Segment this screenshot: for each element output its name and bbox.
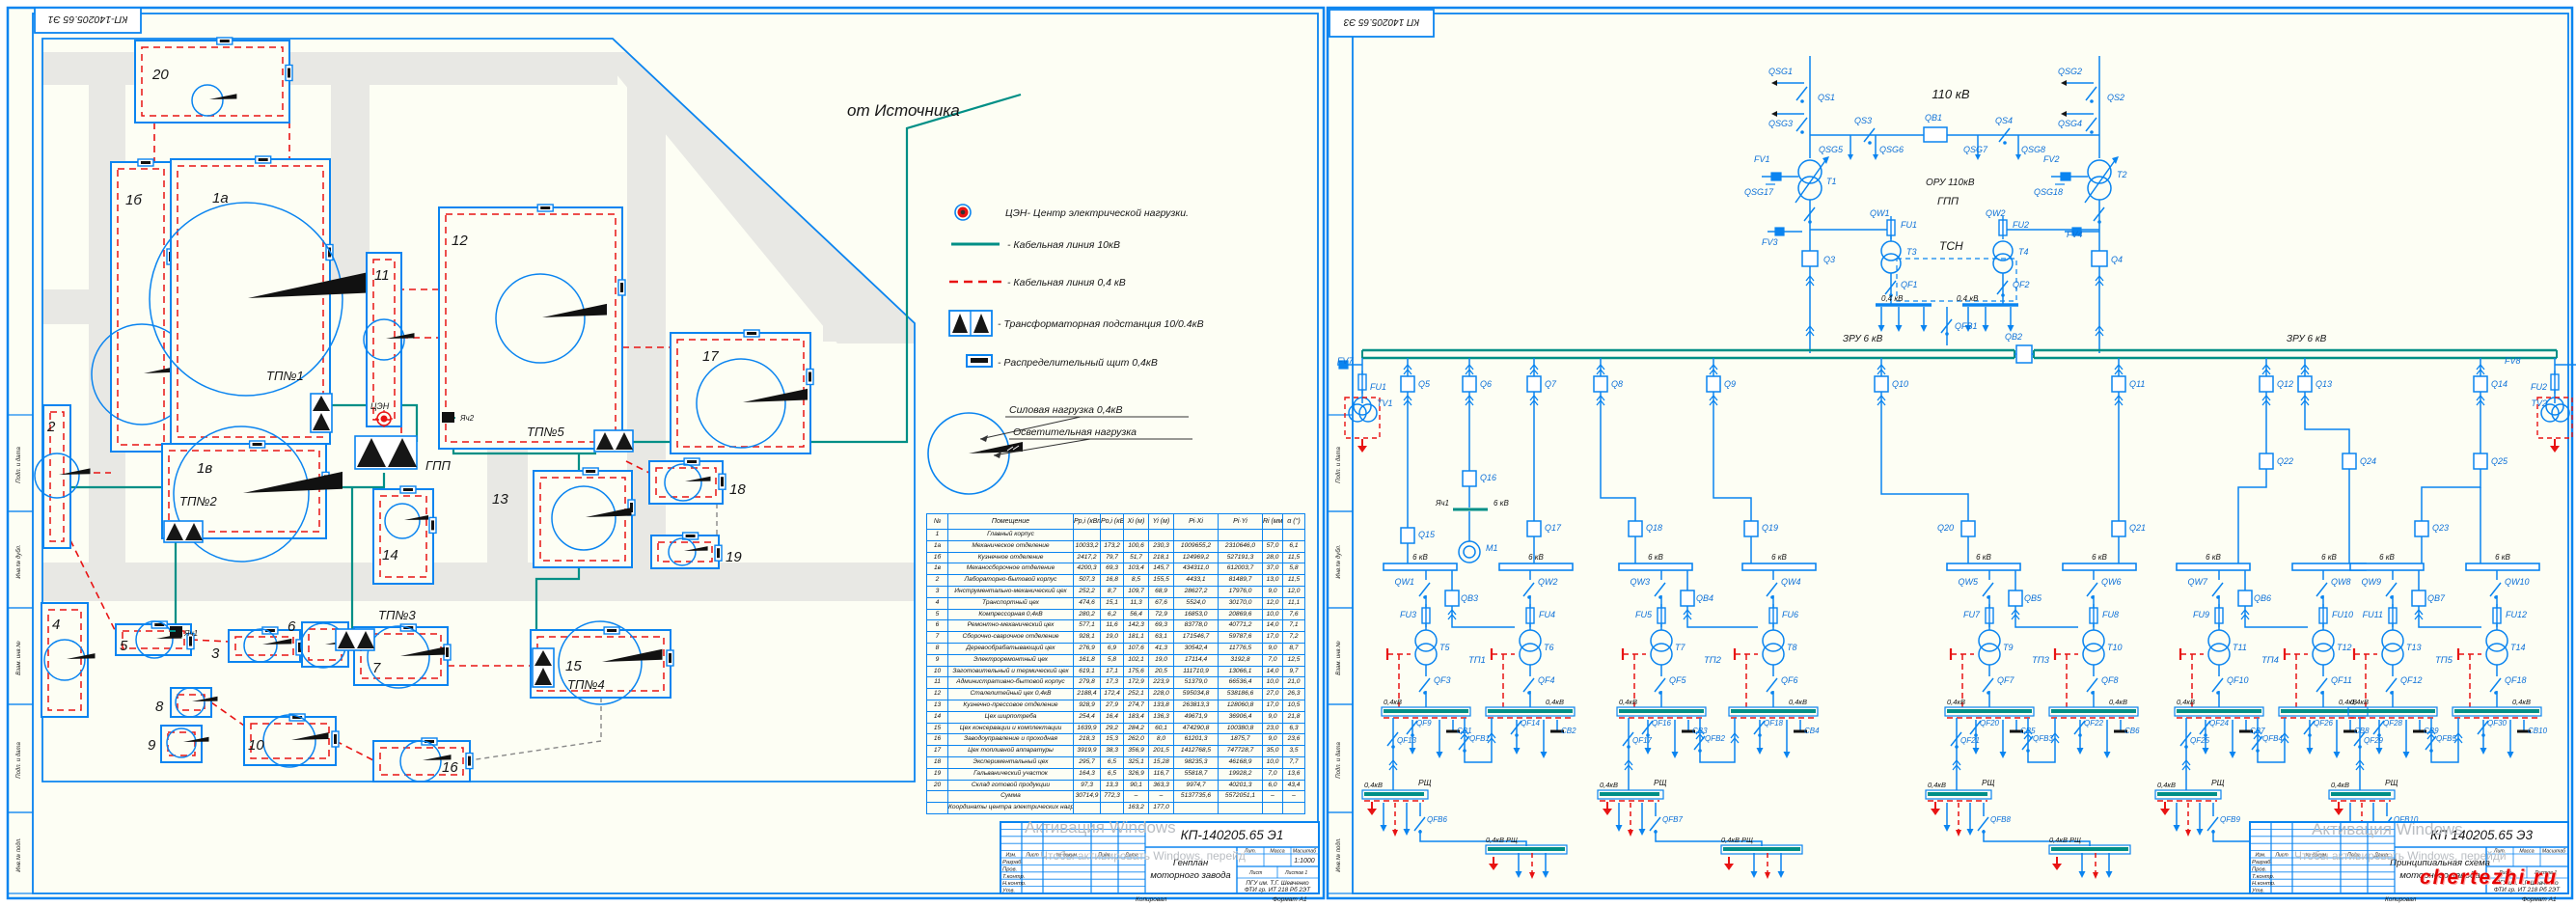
building-number: 8 (155, 699, 164, 715)
schematic-label: QSG5 (1819, 145, 1844, 154)
tb-header: Изм. (1005, 853, 1016, 859)
schematic-label: T1 (1826, 177, 1837, 186)
qfb-label: QFB3 (2033, 734, 2053, 743)
tie-breaker-label: QB4 (1696, 593, 1713, 603)
schematic-label: Q12 (2277, 379, 2293, 389)
schematic-label: QSG18 (2034, 187, 2063, 197)
tp-name: ТП3 (2032, 655, 2050, 666)
lv-bus-label: 0,4кВ (1384, 698, 1402, 706)
table-row: 10Заготовительный и термический цех619,1… (927, 666, 1305, 677)
rshch-voltage: 0,4кВ (2157, 781, 2176, 789)
table-row: 20Склад готовой продукции97,313,390,1363… (927, 780, 1305, 791)
fuse-label: FU9 (2193, 610, 2209, 619)
schematic-label: QSG2 (2058, 67, 2082, 76)
fuse-label: FU8 (2102, 610, 2119, 619)
lv-breaker-label: QF24 (2209, 719, 2230, 728)
table-row: 1бКузнечное отделение2417,279,751,7218,1… (927, 552, 1305, 563)
tb-role: Разраб. (2252, 860, 2272, 865)
building-number: 1а (212, 190, 229, 206)
breaker-label: QF18 (2505, 675, 2527, 685)
plan-label: от Источника (847, 101, 960, 120)
bus-voltage-label: 6 кВ (2495, 553, 2510, 562)
schematic-label: QS3 (1854, 116, 1872, 125)
schematic-label: Q8 (1611, 379, 1623, 389)
building-number: 17 (702, 348, 719, 365)
lv-breaker-label: QF14 (1521, 719, 1541, 728)
transformer-label: T8 (1787, 643, 1797, 652)
table-row: 6Ремонтно-механический цех577,111,6142,3… (927, 620, 1305, 632)
tp-name: ТП4 (2261, 655, 2279, 666)
fuse-label: FU12 (2506, 610, 2527, 619)
cad-drawing-page: КП-140205.65 Э1КП 140205.65 Э3Подп. и да… (0, 0, 2576, 906)
tb-role: Утв. (2251, 889, 2264, 894)
lv-bus-label: 0,4кВ (2177, 698, 2195, 706)
switch-label: QW10 (2505, 577, 2530, 587)
schematic-label: QS4 (1995, 116, 2013, 125)
tb-role: Т.контр. (1002, 874, 1025, 880)
breaker-label: QF11 (2331, 675, 2352, 685)
rshch-label: РЩ (1654, 778, 1667, 787)
tb-role: Н.контр. (2252, 881, 2276, 887)
lv-bus-label: 0,4кВ (1546, 698, 1564, 706)
bus-voltage-label: 6 кВ (1412, 553, 1428, 562)
schematic-label: Q9 (1724, 379, 1736, 389)
switch-label: QW7 (2187, 577, 2207, 587)
building-number: 12 (452, 233, 468, 249)
tb-doc-number: КП-140205.65 Э1 (1181, 828, 1284, 842)
tb-role: Разраб. (1002, 860, 1023, 865)
rshch-label: РЩ (1982, 778, 1995, 787)
tb-sheet: Лист (1248, 870, 1263, 876)
schematic-label: QSG3 (1768, 119, 1793, 128)
substation-label: ТП№1 (266, 369, 304, 383)
breaker-label: QF10 (2227, 675, 2249, 685)
transformer-label: T12 (2337, 643, 2352, 652)
tb-header: Изм. (2255, 853, 2265, 859)
table-row: 1аМеханическое отделение10033,2173,2100,… (927, 540, 1305, 552)
lv-bus-label: 0,4кВ (1619, 698, 1637, 706)
building-number: 15 (565, 658, 582, 674)
switch-label: QW3 (1630, 577, 1650, 587)
schematic-label: Яч1 (1435, 499, 1449, 508)
side-stamp-label: Взам. инв.№ (1335, 641, 1342, 675)
building-number: 6 (288, 618, 296, 635)
tb-header: Дата (2373, 853, 2388, 859)
tb-lit: Масштаб (2542, 849, 2566, 855)
breaker-label: QF5 (1669, 675, 1686, 685)
schematic-label: FU1 (1370, 382, 1386, 392)
substation-label: ГПП (425, 458, 451, 473)
schematic-label: QW2 (1986, 208, 2006, 218)
fuse-label: FU7 (1963, 610, 1981, 619)
side-stamp-label: Подп. и дата (16, 742, 22, 779)
building-number: 3 (211, 645, 220, 662)
tb-role: Утв. (1001, 889, 1015, 894)
schematic-label: FU1 (1901, 220, 1917, 230)
schematic-label: Q24 (2360, 456, 2376, 466)
building-number: 2 (46, 419, 56, 435)
lv-breaker-label: QF21 (1960, 736, 1980, 745)
footer-format: Формат А1 (2522, 896, 2557, 903)
switch-label: QW4 (1781, 577, 1801, 587)
schematic-label: Q18 (1646, 523, 1662, 533)
plan-label: ЦЭН (370, 401, 390, 411)
tb-header: Лист (2274, 853, 2288, 859)
plan-label: Яч1 (183, 629, 198, 638)
table-row: 5Компрессорная 0,4кВ280,26,256,472,91685… (927, 609, 1305, 620)
substation-label: ТП№3 (378, 608, 416, 622)
building-number: 5 (120, 638, 128, 654)
substation-label: ТП№4 (567, 677, 605, 692)
building-number: 9 (148, 737, 156, 754)
schematic-label: FV2 (2043, 154, 2060, 164)
lv-breaker-label: QF29 (2364, 736, 2384, 745)
rshch-voltage: 0,4кВ (1364, 781, 1383, 789)
tp-name: ТП5 (2435, 655, 2453, 666)
side-stamp-label: Подп. и дата (1336, 742, 1342, 779)
schematic-label: 6 кВ (1494, 499, 1509, 508)
transformer-label: T10 (2107, 643, 2123, 652)
schematic-label: Q20 (1937, 523, 1954, 533)
qfb-label: QFB7 (1662, 815, 1683, 824)
tb-title: Генплан (1173, 858, 1209, 868)
schematic-label: Q11 (2129, 379, 2145, 389)
transformer-label: T11 (2233, 643, 2247, 652)
tb-org: ФТИ гр. ИТ 218 Рб 2ЭТ (1245, 886, 1311, 893)
qfb-label: QFB2 (1705, 734, 1725, 743)
schematic-label: ОРУ 110кВ (1926, 178, 1975, 188)
lv-breaker-label: QF9 (1416, 719, 1432, 728)
tie-breaker-label: QB7 (2427, 593, 2446, 603)
schematic-label: QSG17 (1744, 187, 1774, 197)
breaker-label: QF7 (1997, 675, 2014, 685)
building-number: 14 (382, 547, 398, 563)
lv-breaker-label: QF20 (1980, 719, 2000, 728)
tb-header: № докум. (1056, 853, 1079, 859)
cb-label: СВ8 (2354, 727, 2370, 735)
lv-bus-label: 0,4кВ (2512, 698, 2531, 706)
fuse-label: FU10 (2332, 610, 2353, 619)
transformer-label: T5 (1439, 643, 1450, 652)
load-calculation-table: №ПомещениеРр,i (кВт)Ро,i (кВт)Хi (м)Yi (… (926, 513, 1306, 814)
table-row: 1вМеханосборочное отделение4200,369,3103… (927, 563, 1305, 575)
schematic-label: FV1 (1754, 154, 1770, 164)
switch-label: QW2 (1538, 577, 1558, 587)
bus-voltage-label: 6 кВ (2379, 553, 2395, 562)
tb-role: Пров. (2252, 866, 2266, 872)
schematic-label: Q10 (1892, 379, 1908, 389)
rshch-label: РЩ (1418, 778, 1432, 787)
substation-label: ТП№5 (527, 425, 564, 439)
tb-lit: Масштаб (1293, 849, 1317, 855)
lv-breaker-label: QF17 (1632, 736, 1653, 745)
fuse-label: FU5 (1635, 610, 1653, 619)
schematic-label: QB1 (1925, 113, 1942, 123)
schematic-label: ЗРУ 6 кВ (2287, 334, 2327, 344)
tb-scale: 1:1000 (1294, 858, 1315, 865)
table-row: 11Административно-бытовой корпус279,817,… (927, 677, 1305, 689)
table: №ПомещениеРр,i (кВт)Ро,i (кВт)Хi (м)Yi (… (926, 513, 1305, 814)
tie-breaker-label: QB6 (2254, 593, 2271, 603)
bus-voltage-label: 6 кВ (2206, 553, 2221, 562)
lv-breaker-label: QF13 (1397, 736, 1417, 745)
bottom-rshch-label: 0,4кВ РЩ (2049, 836, 2081, 844)
table-row: 14Цех ширпотреба254,416,4183,4136,349671… (927, 711, 1305, 723)
schematic-label: T3 (1906, 247, 1917, 257)
breaker-label: QF12 (2400, 675, 2423, 685)
schematic-label: T4 (2018, 247, 2029, 257)
schematic-label: Q19 (1762, 523, 1778, 533)
lv-breaker-label: QF22 (2084, 719, 2104, 728)
schematic-label: QS2 (2107, 93, 2124, 102)
lv-bus-label: 0,4кВ (1947, 698, 1965, 706)
table-row: 16Заводоуправление и проходная218,315,32… (927, 734, 1305, 746)
schematic-label: FV7 (1337, 356, 1355, 366)
bus-voltage-label: 6 кВ (1648, 553, 1663, 562)
lv-breaker-label: QF28 (2383, 719, 2403, 728)
tp-name: ТП1 (1468, 655, 1486, 666)
bus-voltage-label: 6 кВ (1976, 553, 1991, 562)
tb-sheets: Листов 1 (1284, 870, 1307, 876)
table-row: 7Сборочно-сварочное отделение928,119,018… (927, 632, 1305, 644)
legend-line04: - Кабельная линия 0,4 кВ (1007, 277, 1126, 288)
schematic-label: Q14 (2491, 379, 2507, 389)
side-stamp-label: Подп. и дата (16, 447, 22, 483)
building-number: 18 (729, 481, 746, 498)
building-number: 1б (125, 192, 142, 208)
schematic-label: QSG4 (2058, 119, 2082, 128)
qfb-label: QFB6 (1427, 815, 1447, 824)
tp-name: ТП2 (1704, 655, 1722, 666)
table-row: 9Электроремонтный цех161,85,8102,119,017… (927, 654, 1305, 666)
side-stamp-label: Взам. инв.№ (15, 641, 22, 675)
breaker-label: QF8 (2101, 675, 2119, 685)
building-1а (171, 159, 330, 444)
transformer-label: T13 (2406, 643, 2422, 652)
table-row: 8Деревообрабатывающий цех276,96,9107,641… (927, 643, 1305, 654)
table-row: 3Инструментально-механический цех252,28,… (927, 586, 1305, 597)
table-row: 13Кузнечно-прессовое отделение928,927,92… (927, 700, 1305, 711)
tb-role: Н.контр. (1002, 881, 1027, 887)
schematic-label: Q16 (1480, 473, 1496, 482)
switch-label: QW5 (1958, 577, 1978, 587)
switch-label: QW1 (1394, 577, 1414, 587)
tie-breaker-label: QB5 (2024, 593, 2042, 603)
tb-header: Подп. (1098, 853, 1111, 859)
table-row: 1Главный корпус (927, 530, 1305, 541)
schematic-label: Q25 (2491, 456, 2508, 466)
qfb-label: QFB5 (2436, 734, 2456, 743)
tb-title: моторного завода (1150, 870, 1230, 881)
switch-label: QW9 (2361, 577, 2381, 587)
transformer-label: T9 (2003, 643, 2014, 652)
tb-org: ПГУ им. Т.Г. Шевченко (1246, 880, 1309, 887)
tb-doc-number: КП 140205.65 Э3 (2430, 828, 2533, 842)
bottom-rshch-label: 0,4кВ РЩ (1721, 836, 1753, 844)
cb-label: СВ2 (1561, 727, 1576, 735)
lv-breaker-label: QF16 (1652, 719, 1672, 728)
breaker-label: QF3 (1434, 675, 1451, 685)
building-number: 11 (374, 267, 390, 284)
table-row: 15Цех консервации и комплектации1639,929… (927, 723, 1305, 734)
schematic-label: Q17 (1545, 523, 1562, 533)
building-number: 4 (52, 617, 60, 633)
schematic-label: QB2 (2005, 332, 2022, 342)
table-row: 17Цех топливной аппаратуры3919,938,3356,… (927, 746, 1305, 757)
schematic-label: TV1 (1377, 398, 1393, 408)
schematic-label: Q22 (2277, 456, 2293, 466)
schematic-label: Q5 (1418, 379, 1431, 389)
bus-voltage-label: 6 кВ (1528, 553, 1544, 562)
tie-breaker-label: QB3 (1461, 593, 1478, 603)
tb-header: Лист (1025, 853, 1039, 859)
cb-label: СВ6 (2124, 727, 2140, 735)
schematic-label: QS1 (1818, 93, 1835, 102)
footer-format: Формат А1 (1273, 896, 1307, 903)
building-number: 13 (492, 491, 508, 508)
fuse-label: FU11 (2363, 610, 2383, 619)
schematic-label: QF1 (1901, 280, 1918, 289)
bus-voltage-label: 6 кВ (2321, 553, 2337, 562)
rshch-voltage: 0,4кВ (1600, 781, 1618, 789)
building-number: 1в (197, 460, 212, 477)
schematic-label: M1 (1486, 543, 1498, 553)
tb-role: Т.контр. (2252, 874, 2274, 880)
tb-lit: Лит. (2493, 849, 2506, 855)
transformer-label: T7 (1675, 643, 1685, 652)
schematic-label: QSG8 (2021, 145, 2045, 154)
footer-copy: Копировал (2385, 896, 2417, 903)
qfb-label: QFB1 (1469, 734, 1490, 743)
lv-breaker-label: QF18 (1764, 719, 1784, 728)
schematic-label: QSG6 (1879, 145, 1904, 154)
tb-role: Пров. (1002, 866, 1017, 872)
breaker-label: QF4 (1538, 675, 1555, 685)
chertezhi-watermark: chertezhi.ru (2420, 866, 2558, 890)
breaker-label: QF6 (1781, 675, 1798, 685)
lv-breaker-label: QF30 (2487, 719, 2507, 728)
legend-load1: Силовая нагрузка 0,4кВ (1009, 404, 1123, 416)
schematic-label: 110 кВ (1932, 87, 1969, 101)
schematic-label: ТСН (1939, 239, 1963, 253)
schematic-label: Q7 (1545, 379, 1557, 389)
schematic-label: TV2 (2531, 398, 2547, 408)
table-row: 12Сталелитейный цех 0,4кВ2188,4172,4252,… (927, 689, 1305, 700)
schematic-label: Q15 (1418, 530, 1436, 539)
schematic-label: Q21 (2129, 523, 2146, 533)
schematic-label: QSG1 (1768, 67, 1793, 76)
lv-breaker-label: QF26 (2314, 719, 2334, 728)
rshch-voltage: 0,4кВ (1928, 781, 1946, 789)
legend-line10: - Кабельная линия 10кВ (1007, 239, 1120, 251)
tb-header: № докум. (2306, 853, 2328, 859)
schematic-label: 0,4 кВ (1881, 294, 1904, 303)
table-row: 18Экспериментальный цех295,76,5325,115,2… (927, 756, 1305, 768)
building-number: 7 (372, 660, 381, 676)
bus-voltage-label: 6 кВ (2092, 553, 2107, 562)
switch-label: QW6 (2101, 577, 2122, 587)
schematic-label: Q3 (1823, 255, 1835, 264)
switch-label: QW8 (2331, 577, 2351, 587)
table-row: Координаты центра электрических нагрузок… (927, 803, 1305, 814)
substation-label: ТП№2 (179, 494, 217, 508)
side-stamp-label: Подп. и дата (1336, 447, 1342, 483)
bottom-rshch-label: 0,4кВ РЩ (1486, 836, 1518, 844)
schematic-label: FV4 (2067, 230, 2083, 239)
building-13 (534, 471, 632, 567)
qfb-label: QFB9 (2220, 815, 2240, 824)
fuse-label: FU4 (1539, 610, 1555, 619)
lv-bus-label: 0,4кВ (1789, 698, 1807, 706)
building-number: 16 (442, 759, 458, 776)
side-stamp-label: Инв.№ дубл. (1335, 544, 1342, 578)
tb-header: Подп. (2347, 853, 2361, 859)
schematic-label: Q13 (2316, 379, 2332, 389)
schematic-label: FV8 (2505, 356, 2521, 366)
schematic-label: QFB1 (1955, 321, 1978, 331)
transformer-label: T14 (2510, 643, 2526, 652)
schematic-label: QW1 (1870, 208, 1890, 218)
cb-label: СВ10 (2528, 727, 2548, 735)
legend-cen: ЦЭН- Центр электрической нагрузки. (1005, 207, 1189, 219)
schematic-label: 0,4 кВ (1957, 294, 1979, 303)
lv-bus-label: 0,4кВ (2350, 698, 2369, 706)
qfb-label: QFB4 (2262, 734, 2283, 743)
side-stamp-label: Инв.№ подл. (1335, 837, 1342, 872)
building-number: 19 (726, 549, 742, 565)
schematic-label: QF2 (2013, 280, 2030, 289)
fuse-label: FU6 (1782, 610, 1798, 619)
legend-shield: - Распределительный щит 0,4кВ (998, 357, 1158, 369)
schematic-label: FU2 (2531, 382, 2547, 392)
rshch-label: РЩ (2211, 778, 2225, 787)
schematic-label: ЗРУ 6 кВ (1843, 334, 1883, 344)
tb-lit: Масса (2519, 849, 2534, 855)
doc-number-stamp: КП 140205.65 Э3 (1343, 16, 1419, 27)
schematic-label: QSG7 (1963, 145, 1988, 154)
building-19 (651, 535, 719, 568)
tb-header: Дата (1124, 853, 1138, 859)
lv-breaker-label: QF25 (2190, 736, 2210, 745)
footer-copy: Копировал (1136, 896, 1167, 903)
legend-tp: - Трансформаторная подстанция 10/0.4кВ (998, 318, 1204, 330)
lv-bus-label: 0,4кВ (2109, 698, 2127, 706)
schematic-label: FU2 (2013, 220, 2029, 230)
building-number: 20 (151, 67, 169, 83)
table-row: 4Транспортный цех474,615,111,367,65524,0… (927, 597, 1305, 609)
schematic-label: ГПП (1937, 196, 1959, 207)
bus-voltage-label: 6 кВ (1771, 553, 1787, 562)
rshch-label: РЩ (2385, 778, 2398, 787)
schematic-label: Q4 (2111, 255, 2123, 264)
side-stamp-label: Инв.№ подл. (15, 837, 22, 872)
doc-number-stamp: КП-140205.65 Э1 (48, 14, 128, 25)
side-stamp-label: Инв.№ дубл. (15, 544, 22, 578)
table-row: 19Гальванический участок164,36,5326,9116… (927, 768, 1305, 780)
qfb-label: QFB8 (1990, 815, 2011, 824)
fuse-label: FU3 (1400, 610, 1416, 619)
cb-label: СВ4 (1804, 727, 1820, 735)
building-number: 10 (248, 737, 264, 754)
schematic-label: Q23 (2432, 523, 2449, 533)
table-row: 2Лабораторно-бытовой корпус507,316,88,51… (927, 575, 1305, 587)
schematic-label: FV3 (1762, 237, 1778, 247)
tb-lit: Лит. (1244, 849, 1256, 855)
tb-lit: Масса (1270, 849, 1284, 855)
transformer-label: T6 (1544, 643, 1554, 652)
legend-load2: Осветительная нагрузка (1013, 426, 1137, 438)
table-row: Сумма30714,9772,3––5137735,65572051,1–– (927, 791, 1305, 803)
